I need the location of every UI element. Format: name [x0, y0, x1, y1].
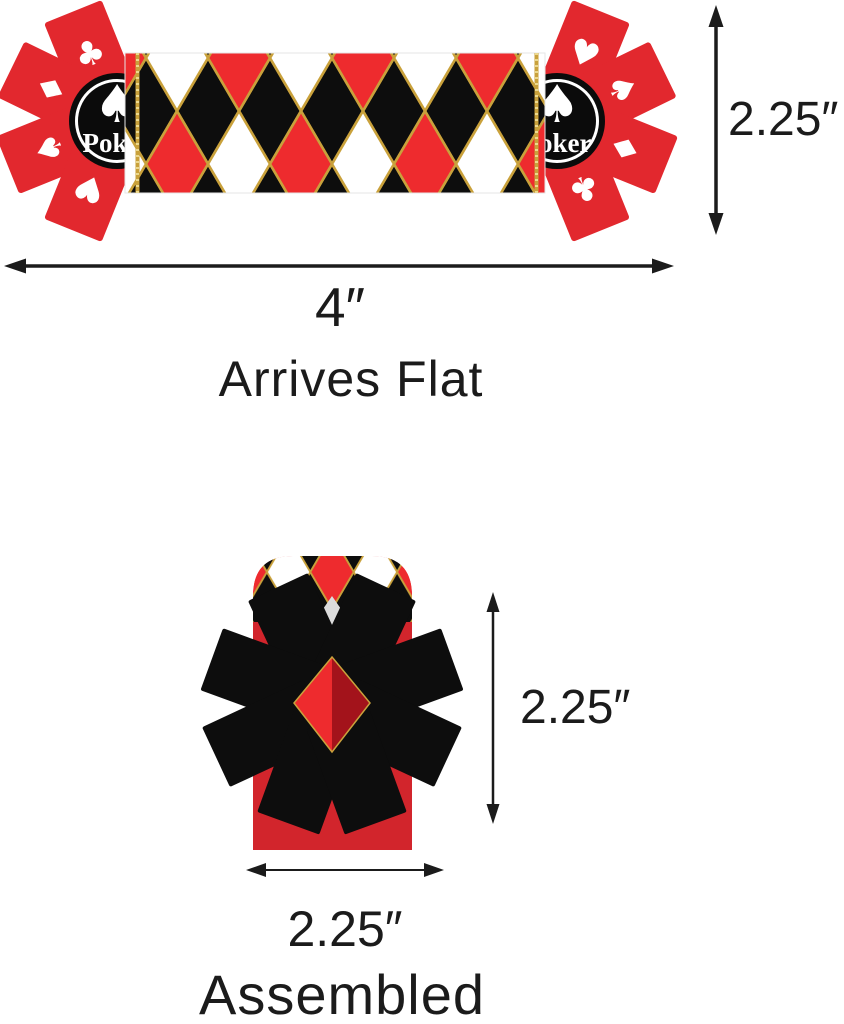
flat-height-label: 2.25″	[728, 93, 838, 146]
assembled-width-arrow	[246, 863, 444, 877]
assembled-caption: Assembled	[199, 963, 485, 1024]
harlequin-panel	[125, 53, 545, 193]
flat-height-arrow	[709, 5, 724, 235]
assembled-favor-graphic	[200, 556, 463, 850]
flat-width-arrow	[4, 259, 674, 274]
product-dimension-graphic: ♣ ♦ ♠ ♥ ♥	[0, 0, 844, 1024]
flat-width-label: 4″	[315, 276, 365, 338]
graphic-canvas: ♣ ♦ ♠ ♥ ♥	[0, 0, 844, 1024]
assembled-height-label: 2.25″	[520, 681, 630, 734]
assembled-width-label: 2.25″	[287, 901, 402, 957]
flat-caption: Arrives Flat	[219, 351, 484, 407]
assembled-height-arrow	[487, 592, 500, 824]
flat-favor-graphic: ♣ ♦ ♠ ♥ ♥	[0, 0, 678, 242]
